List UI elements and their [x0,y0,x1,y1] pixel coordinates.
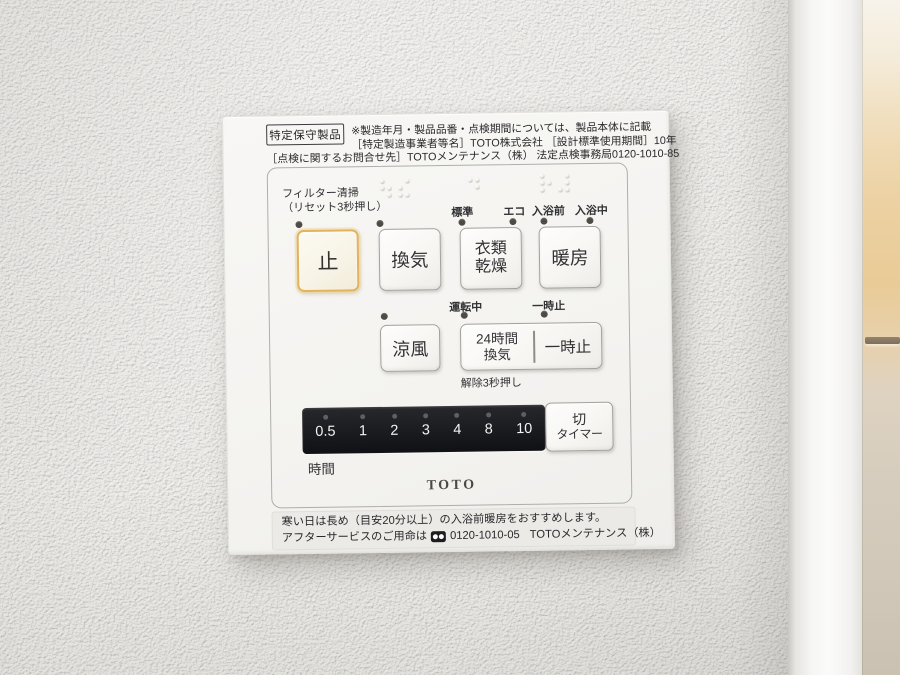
stop-button[interactable]: 止 [297,229,360,292]
prebath-led [540,218,547,225]
timer-display: 0.5 1 2 3 4 8 10 [302,405,546,454]
bathroom-wall-scene: 特定保守製品 ※製造年月・製品品番・点検期間については、製品本体に記載 ［特定製… [0,0,900,675]
cabinet-handle [865,337,900,344]
pause-label: 一時止 [532,297,565,313]
timer-led [360,414,365,419]
timer-off-button[interactable]: 切 タイマー [545,402,614,452]
wall-corner-trim [788,0,863,675]
timer-unit-label: 時間 [308,458,335,478]
pause-led [541,311,548,318]
filter-clean-label: フィルター清掃 （リセット3秒押し） [282,187,387,215]
timer-led [455,413,460,418]
braille-dots [540,173,569,191]
ventilation-button[interactable]: 換気 [379,228,442,291]
filter-led [295,221,302,228]
braille-dots [380,179,409,197]
certification-badge: 特定保守製品 [266,123,344,145]
timer-led [323,415,328,420]
vent24-button[interactable]: 24時間 換気 [461,331,533,363]
braille-dots [468,178,479,196]
timer-led [486,412,491,417]
toto-bathroom-control-panel: 特定保守製品 ※製造年月・製品品番・点検期間については、製品本体に記載 ［特定製… [222,110,675,555]
cool-breeze-button[interactable]: 涼風 [380,324,441,372]
control-button-area: フィルター清掃 （リセット3秒押し） 標準 エコ 入浴前 入浴中 [267,162,633,508]
footer-line2: アフターサービスのご用命は 0120-1010-05 TOTOメンテナンス（株） [282,526,626,547]
running-led [461,312,468,319]
wall-corner-shadow [735,0,788,675]
mode-label-standard: 標準 [451,204,473,220]
eco-led [509,218,516,225]
clothes-dry-button[interactable]: 衣類 乾燥 [460,227,523,290]
footer-note: 寒い日は長め（目安20分以上）の入浴前暖房をおすすめします。 アフターサービスの… [271,506,636,550]
vent24-pause-button-group: 24時間 換気 一時止 [460,322,603,371]
timer-led [392,414,397,419]
standard-led [458,219,465,226]
cool-led [381,313,388,320]
mode-label-inbath: 入浴中 [575,202,608,218]
vent-led [376,220,383,227]
timer-led [423,413,428,418]
timer-led [521,412,526,417]
mode-label-prebath: 入浴前 [532,202,565,218]
mode-label-eco: エコ [503,203,525,219]
release-note: 解除3秒押し [461,374,522,391]
toto-logo: TOTO [272,475,631,496]
freedial-phone-icon [431,531,446,542]
pause-button[interactable]: 一時止 [535,334,602,357]
inbath-led [586,217,593,224]
heating-button[interactable]: 暖房 [539,226,602,289]
